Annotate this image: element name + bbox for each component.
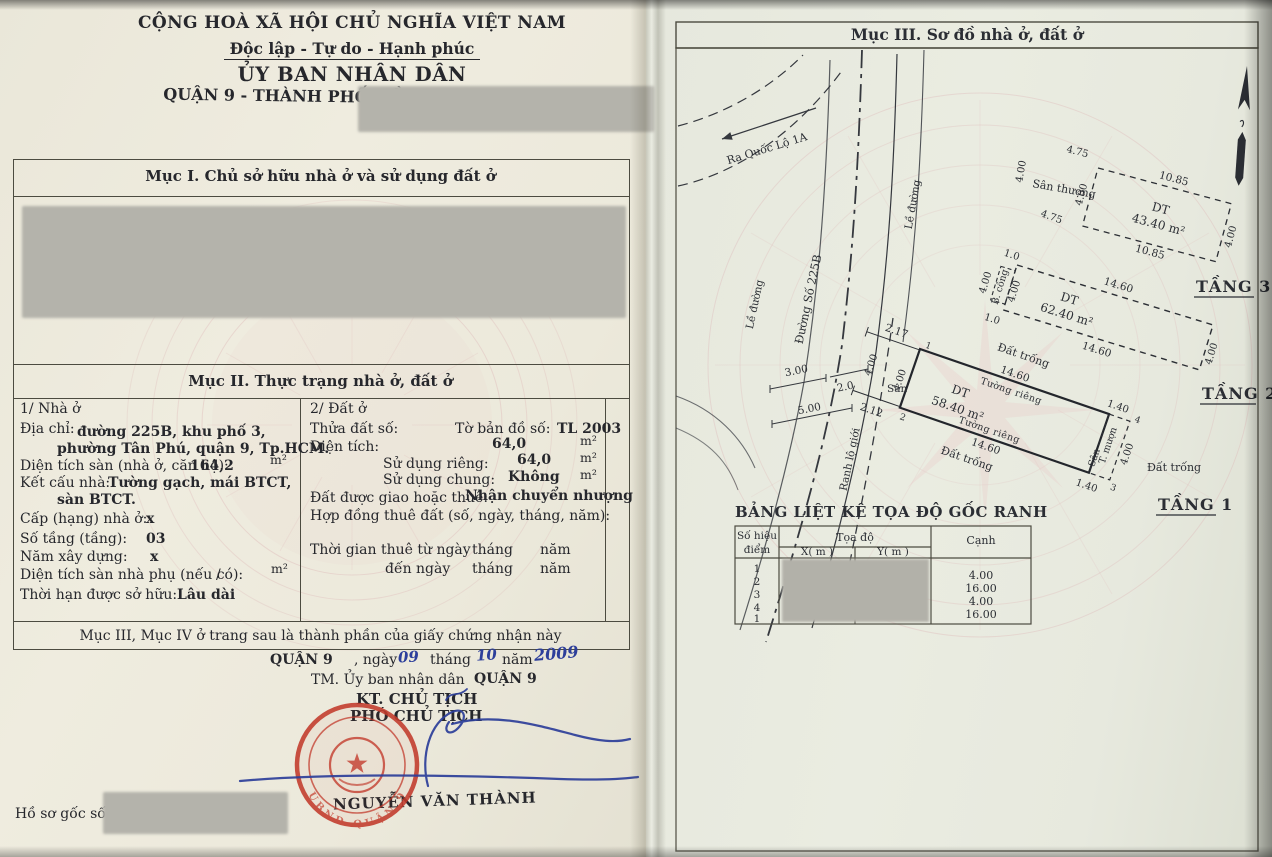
edge-value: 4.00 (969, 569, 994, 582)
point-row: 3 (754, 589, 761, 601)
corner-curve-dashed (678, 72, 841, 186)
corner-curve-solid (676, 428, 738, 490)
floor3-plan: 10.85 DT 43.40 m² 10.85 4.00 4.00 (1065, 150, 1248, 279)
borrowed-wall-label: T. mượn (1097, 426, 1120, 465)
dim-balcony-4-00: 4.00 (977, 270, 994, 295)
pen-initial-mark (446, 689, 467, 700)
floor-caption-underlines (1156, 297, 1256, 515)
sidewalk-label-right: Lề đường (902, 178, 924, 230)
dim-terrace-4-75-bottom: 4.75 (1039, 208, 1064, 226)
dim-floor2-bottom-14-60: 14.60 (1081, 340, 1113, 360)
corner-point-3: 3 (1109, 483, 1118, 494)
dim-floor3-bottom-10-85: 10.85 (1134, 243, 1166, 262)
point-row: 2 (754, 576, 761, 588)
edge-value: 16.00 (965, 608, 997, 621)
col-point-line2: điểm (744, 543, 771, 556)
left-page: CỘNG HOÀ XÃ HỘI CHỦ NGHĨA VIỆT NAM Độc l… (0, 0, 646, 857)
floor1-plan: 2.17 1 2.12 2 4.00 4.00 DT 58.40 m² 14.6… (836, 299, 1154, 516)
corner-curve-solid (676, 396, 755, 468)
floor1-caption: TẦNG 1 (1158, 492, 1233, 514)
dim-terrace-4-00: 4.00 (1014, 160, 1029, 184)
dim-floor2-left-4-00: 4.00 (1006, 279, 1023, 304)
corner-point-2: 2 (898, 412, 907, 423)
coordinate-table-headers: Số hiệu điểm Tọa độ X( m ) Y( m ) Cạnh (737, 529, 996, 558)
dim-floor2-right-4-00: 4.00 (1204, 342, 1221, 367)
vacant-land-right-label: Đất trống (1147, 461, 1201, 474)
edge-value: 16.00 (965, 582, 997, 595)
corner-point-1: 1 (924, 341, 933, 352)
edge-value: 4.00 (969, 595, 994, 608)
dim-balcony-bottom-1-0: 1.0 (983, 312, 1001, 327)
point-row: 1 (754, 613, 761, 625)
floor2-caption: TẦNG 2 (1202, 381, 1272, 403)
col-y: Y( m ) (876, 546, 909, 558)
rear-yard-label: Sân (1086, 447, 1102, 468)
dim-2-12: 2.12 (858, 401, 884, 420)
floor1-dt-label: DT (950, 382, 971, 401)
terrace-label: Sân thượng (1031, 177, 1096, 201)
north-arrow-icon (1233, 66, 1253, 187)
dim-front-4-00: 4.00 (863, 353, 881, 378)
corner-point-4: 4 (1133, 415, 1142, 426)
redaction-block-coordinates (782, 559, 929, 622)
exit-road-label: Ra Quốc Lộ 1A (725, 130, 810, 167)
right-page-title: Mục III. Sơ đồ nhà ở, đất ở (851, 25, 1085, 44)
corner-curve-dashed (678, 55, 803, 126)
coordinate-table-title: BẢNG LIỆT KÊ TỌA ĐỘ GỐC RANH (735, 501, 1048, 521)
col-edge: Cạnh (966, 534, 995, 547)
point-row: 1 (754, 563, 761, 575)
ink-overlay: UBND QUẬN 9 (0, 0, 646, 857)
floor-captions: TẦNG 3 TẦNG 2 TẦNG 1 (1158, 274, 1272, 514)
official-red-seal: UBND QUẬN 9 (297, 705, 417, 830)
road-boundary-label: Ranh lộ giới (838, 426, 863, 492)
col-coord: Tọa độ (836, 531, 874, 544)
dim-floor3-right-4-00: 4.00 (1223, 225, 1239, 249)
dim-floor2-top-14-60: 14.60 (1102, 275, 1134, 295)
dim-balcony-top-1-0: 1.0 (1002, 248, 1020, 263)
floor3-caption: TẦNG 3 (1196, 274, 1271, 296)
street-name-label: Đường Số 225B (792, 253, 825, 345)
col-point-line1: Số hiệu (737, 529, 777, 542)
right-page: Mục III. Sơ đồ nhà ở, đất ở Ra Quốc Lộ 1… (646, 0, 1272, 857)
site-plan-diagram: Mục III. Sơ đồ nhà ở, đất ở Ra Quốc Lộ 1… (646, 0, 1272, 857)
scanned-certificate-photo: CỘNG HOÀ XÃ HỘI CHỦ NGHĨA VIỆT NAM Độc l… (0, 0, 1272, 857)
dim-terrace-4-75-top: 4.75 (1065, 144, 1089, 160)
dim-rear-bottom-1-40: 1.40 (1074, 477, 1099, 495)
floor3-dt-label: DT (1150, 200, 1171, 218)
front-yard-label: Sân (887, 383, 907, 395)
sidewalk-label-left: Lề đường (743, 278, 766, 330)
front-setback-ticks (846, 327, 922, 411)
col-x: X( m ) (801, 546, 833, 558)
exit-arrow-head-icon (722, 132, 733, 140)
